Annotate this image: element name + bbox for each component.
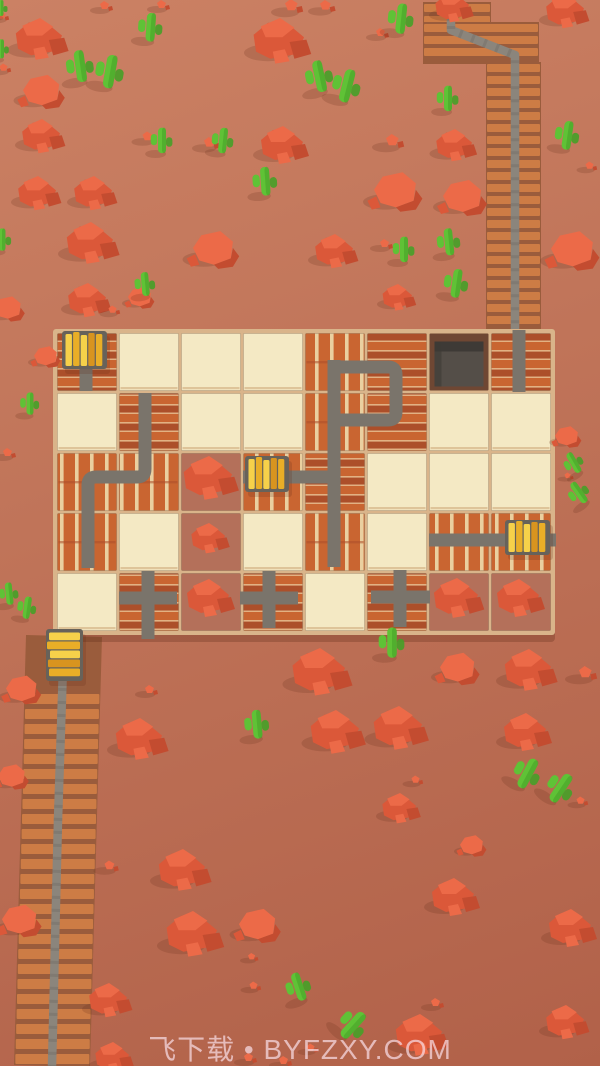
tile-face: [368, 514, 427, 571]
cactus-arm: [397, 639, 405, 650]
cactus-arm: [211, 133, 219, 145]
cactus-arm: [30, 605, 37, 614]
rock-facet: [203, 933, 225, 952]
gold-bar: [50, 651, 80, 659]
cactus-arm: [387, 10, 396, 24]
rock-facet: [404, 297, 417, 308]
tile-edge: [183, 447, 240, 449]
tile-face: [120, 514, 179, 571]
rock: [271, 0, 303, 17]
rock-facet: [443, 180, 481, 212]
rock-facet: [579, 927, 597, 943]
rock: [540, 231, 599, 271]
cactus-arm: [95, 61, 106, 77]
gold-bar: [524, 524, 530, 552]
gold-bar: [256, 457, 262, 489]
tile-edge: [59, 447, 116, 449]
tile-face: [58, 574, 117, 631]
gold-bar: [66, 334, 72, 366]
tile-face: [58, 394, 117, 451]
cactus: [131, 12, 164, 48]
rock: [283, 648, 353, 696]
tile-edge: [245, 567, 302, 569]
gold-cart-3: [505, 520, 553, 560]
board-tile-r3-c7[interactable]: [430, 454, 489, 511]
rock: [363, 172, 422, 212]
cactus: [276, 969, 316, 1011]
rock-facet: [49, 135, 65, 149]
cactus: [387, 237, 414, 267]
rock: [421, 998, 444, 1011]
tile-edge: [121, 567, 178, 569]
tile-face: [182, 394, 241, 451]
rock-facet: [555, 426, 578, 445]
tile-face: [430, 394, 489, 451]
gold-bar: [88, 333, 94, 366]
tile-edge: [59, 627, 116, 629]
rock: [253, 126, 309, 164]
rock: [403, 776, 424, 788]
cactus-arm: [134, 278, 141, 289]
cactus-arm: [379, 635, 387, 648]
tile-face: [492, 394, 551, 451]
cactus-arm: [155, 24, 163, 35]
rock: [183, 231, 240, 269]
cactus: [430, 227, 462, 262]
rock: [308, 0, 336, 16]
cactus-arm: [554, 126, 563, 139]
tile-face: [368, 454, 427, 511]
tile-face: [182, 334, 241, 391]
rock-facet: [23, 75, 59, 105]
tile-edge: [493, 447, 550, 449]
tile-edge: [369, 567, 426, 569]
rock: [370, 239, 393, 252]
cactus-arm: [0, 589, 5, 599]
cactus-arm: [460, 280, 469, 292]
cactus-arm: [304, 70, 315, 85]
rock-facet: [100, 242, 120, 260]
pit-shade: [435, 342, 442, 387]
cactus: [379, 1, 415, 40]
rock: [302, 710, 366, 754]
tile-edge: [369, 507, 426, 509]
board-tile-r4-c4[interactable]: [244, 514, 303, 571]
cactus-stem-shade: [448, 86, 452, 112]
rock: [11, 176, 61, 210]
cactus-arm: [571, 132, 580, 144]
rock: [67, 176, 117, 210]
tile-edge: [183, 387, 240, 389]
rock-facet: [551, 231, 593, 266]
cactus-arm: [408, 246, 414, 256]
cactus: [245, 166, 278, 202]
cactus-stem-shade: [1, 0, 4, 16]
gold-cart-4: [46, 629, 86, 686]
board-tile-r2-c3[interactable]: [182, 394, 241, 451]
cactus-stem-shade: [30, 392, 34, 414]
board-tile-r2-c1[interactable]: [58, 394, 117, 451]
rock: [568, 797, 589, 809]
tile-edge: [245, 447, 302, 449]
tile-face: [492, 454, 551, 511]
tile-edge: [245, 387, 302, 389]
cactus: [0, 228, 11, 255]
rock-facet: [462, 144, 477, 158]
rock-facet: [193, 231, 233, 265]
cactus: [10, 595, 37, 625]
game-scene: [0, 0, 600, 1066]
tile-edge: [121, 387, 178, 389]
rock-facet: [374, 172, 416, 207]
cactus: [128, 271, 156, 302]
board-tile-r2-c7[interactable]: [430, 394, 489, 451]
board-tile-r3-c8[interactable]: [492, 454, 551, 511]
rock-facet: [0, 764, 25, 786]
cactus-arm: [65, 59, 75, 74]
board-tile-r1-c3[interactable]: [182, 334, 241, 391]
rock-facet: [192, 869, 212, 887]
cactus-arm: [452, 95, 458, 105]
rock: [433, 180, 487, 216]
rock-facet: [345, 731, 366, 749]
cactus-arm: [269, 177, 277, 188]
cactus-arm: [443, 274, 452, 287]
rock-facet: [239, 909, 275, 939]
rock: [376, 793, 421, 823]
cactus-arm: [405, 15, 414, 27]
rock-facet: [0, 64, 8, 71]
rock: [430, 129, 478, 161]
gold-cart-1: [62, 331, 110, 374]
rock: [424, 878, 480, 916]
cactus-arm: [151, 134, 157, 145]
rock-facet: [462, 896, 480, 912]
tile-face: [244, 514, 303, 571]
board-tile-r1-c4[interactable]: [244, 334, 303, 391]
cactus-stem-shade: [162, 128, 166, 154]
gold-bar: [278, 459, 284, 489]
gold-bar: [81, 335, 87, 366]
rock: [308, 234, 358, 268]
causeway-top: [423, 2, 541, 334]
gold-bar: [263, 460, 269, 489]
gold-bar: [516, 521, 522, 552]
cactus-arm: [149, 280, 156, 289]
gold-bar: [73, 332, 79, 366]
cactus-stem-shade: [1, 39, 4, 58]
cactus-arm: [436, 236, 444, 249]
rock: [431, 653, 480, 685]
cactus-arm: [226, 138, 233, 148]
gold-bar: [531, 522, 537, 552]
rock-facet: [330, 671, 353, 691]
tile-face: [120, 334, 179, 391]
cactus-arm: [85, 60, 95, 73]
rock: [541, 909, 597, 947]
cactus-arm: [4, 46, 9, 53]
cactus-arm: [17, 601, 24, 611]
gold-bar: [47, 642, 80, 650]
cactus-arm: [34, 401, 40, 409]
board-tile-r5-c5[interactable]: [306, 574, 365, 631]
rock-facet: [342, 250, 358, 264]
cactus: [546, 118, 581, 156]
board-tile-r4-c6[interactable]: [368, 514, 427, 571]
causeway-tie: [424, 24, 538, 32]
gold-bar: [539, 523, 545, 552]
rock: [58, 222, 120, 264]
rock: [577, 162, 598, 174]
rock: [147, 0, 170, 13]
rock: [94, 861, 119, 875]
tile-edge: [307, 627, 364, 629]
board-tile-r5-c1[interactable]: [58, 574, 117, 631]
rock-facet: [49, 38, 69, 56]
rock: [157, 911, 224, 957]
rock: [135, 685, 158, 698]
cactus-stem-shade: [2, 228, 6, 250]
rock: [107, 718, 169, 760]
rock: [0, 448, 16, 461]
cactus-arm: [437, 92, 443, 103]
tile-face: [244, 394, 303, 451]
board-tile-r1-c2[interactable]: [120, 334, 179, 391]
tile-face: [244, 334, 303, 391]
rock: [365, 706, 429, 750]
cactus-arm: [12, 590, 18, 599]
rock-facet: [534, 731, 552, 747]
rock: [150, 849, 212, 891]
cactus-arm: [244, 718, 252, 731]
cactus-arm: [138, 19, 146, 32]
cactus-stem-shade: [404, 237, 408, 263]
cactus-arm: [261, 720, 269, 731]
tile-edge: [431, 447, 488, 449]
board-tile-r3-c6[interactable]: [368, 454, 427, 511]
rock-facet: [116, 999, 132, 1013]
tile-edge: [493, 507, 550, 509]
board-tile-r2-c4[interactable]: [244, 394, 303, 451]
rock-facet: [101, 192, 117, 206]
tile-face: [306, 574, 365, 631]
cactus: [559, 477, 596, 515]
cactus: [0, 39, 9, 63]
gold-bar: [49, 669, 80, 677]
rock: [244, 18, 311, 64]
rock: [565, 666, 597, 684]
gold-bar: [49, 633, 80, 641]
gold-bar: [509, 523, 515, 552]
cactus-arm: [453, 237, 461, 248]
rock: [0, 64, 11, 76]
rock: [240, 953, 258, 963]
cactus: [85, 51, 127, 95]
rock: [454, 835, 486, 857]
cactus: [237, 709, 270, 745]
rock: [15, 119, 65, 153]
rock: [496, 713, 552, 751]
rock: [7, 18, 69, 60]
rock-facet: [460, 835, 483, 854]
rock-facet: [45, 192, 61, 206]
gold-bar: [271, 458, 277, 489]
cactus-arm: [166, 137, 172, 147]
cactus-arm: [20, 398, 26, 408]
cactus-arm: [252, 174, 260, 187]
watermark-text: 飞下载 • BYFZXY.COM: [0, 1028, 600, 1066]
gold-bar: [48, 660, 80, 668]
pit-shade: [435, 342, 484, 352]
cactus: [15, 392, 39, 419]
rock-facet: [440, 653, 474, 682]
cactus: [435, 266, 470, 304]
rock: [14, 75, 65, 109]
gold-cart-2: [245, 456, 292, 497]
rock: [372, 134, 404, 152]
cactus: [0, 582, 20, 611]
causeway-tie: [424, 48, 538, 56]
rock-facet: [291, 144, 309, 160]
rock: [0, 296, 25, 321]
rock: [377, 284, 416, 311]
rock-facet: [573, 10, 589, 24]
tile-edge: [431, 507, 488, 509]
rock-facet: [538, 669, 558, 687]
board-tile-r4-c2[interactable]: [120, 514, 179, 571]
cactus-arm: [393, 243, 399, 254]
cactus-arm: [6, 237, 12, 245]
cactus-stem-shade: [392, 627, 397, 657]
rock-facet: [149, 738, 169, 756]
rock: [90, 1, 113, 14]
rock: [539, 0, 589, 28]
board-tile-r2-c8[interactable]: [492, 394, 551, 451]
game-screen: 飞下载 • BYFZXY.COM: [0, 0, 600, 1066]
rock: [496, 649, 558, 691]
tile-face: [430, 454, 489, 511]
gold-bar: [96, 334, 102, 366]
rock: [241, 982, 262, 994]
rock-facet: [290, 40, 312, 59]
cactus-arm: [4, 6, 8, 12]
rock: [230, 909, 281, 943]
gold-bar: [249, 459, 255, 489]
rock-facet: [408, 727, 429, 745]
cactus: [431, 86, 458, 116]
rock-facet: [406, 807, 420, 820]
board-tile-r1-c7[interactable]: [430, 334, 489, 391]
